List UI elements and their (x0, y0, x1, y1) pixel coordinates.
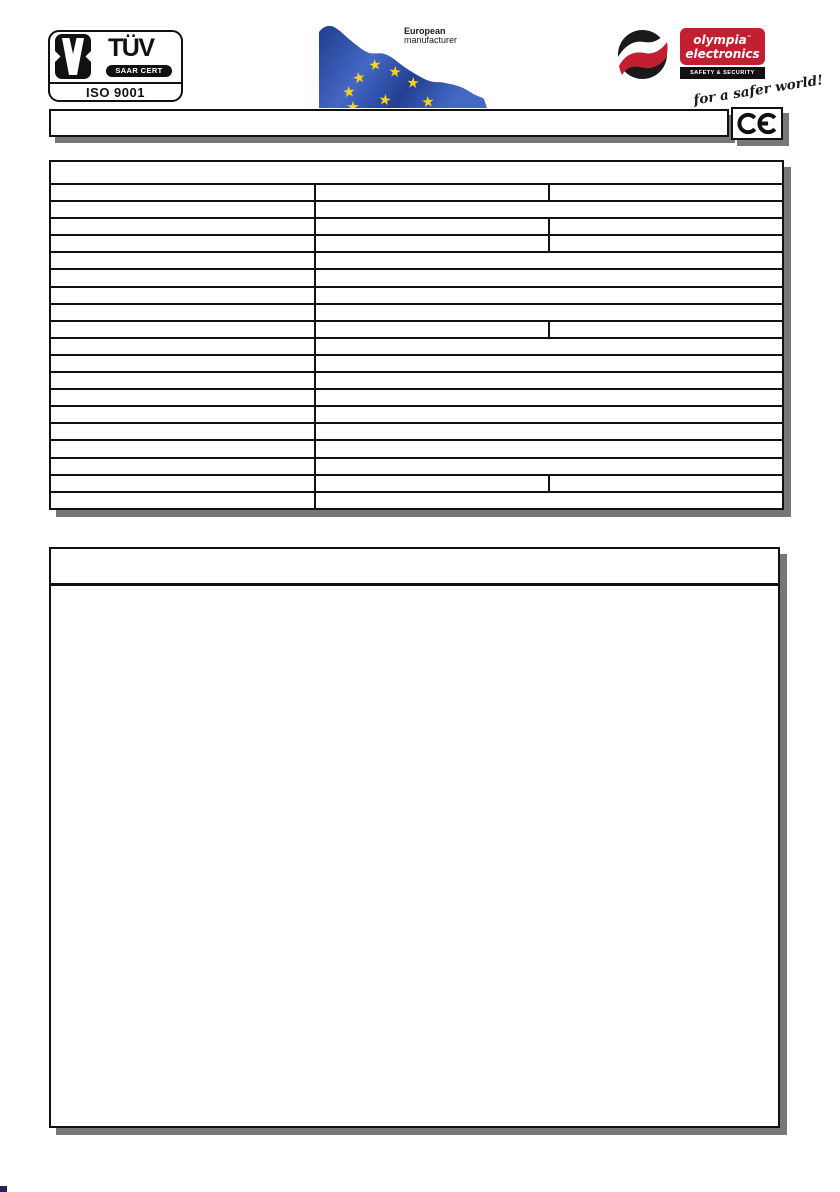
spec-table-row (51, 320, 782, 337)
safety-security-systems-bar: SAFETY & SECURITY SYSTEMS (680, 67, 765, 79)
spec-cell (316, 390, 782, 405)
olympia-wordmark-box: olympia™ electronics (680, 28, 765, 65)
spec-table-row (51, 337, 782, 354)
olympia-wordmark-line2: electronics (680, 48, 765, 62)
spec-table-row (51, 371, 782, 388)
spec-table-row (51, 200, 782, 217)
spec-cell (51, 305, 316, 320)
spec-cell (316, 202, 782, 217)
spec-cell (51, 493, 316, 508)
spec-cell (316, 288, 782, 303)
iso-9001-label: ISO 9001 (50, 82, 181, 100)
european-manufacturer-label: European manufacturer (404, 27, 457, 44)
spec-cell (316, 356, 782, 371)
spec-table-row (51, 234, 782, 251)
spec-cell (51, 339, 316, 354)
spec-cell (316, 185, 550, 200)
spec-table-row (51, 268, 782, 285)
ce-mark-icon (737, 111, 777, 136)
spec-cell (51, 219, 316, 234)
european-label-line2: manufacturer (404, 36, 457, 45)
spec-cell (51, 424, 316, 439)
spec-table-row (51, 217, 782, 234)
spec-cell (316, 424, 782, 439)
ce-mark-box (731, 107, 783, 140)
page-corner-mark (0, 1186, 7, 1192)
spec-table-row (51, 439, 782, 456)
spec-cell (316, 253, 782, 268)
spec-cell (51, 356, 316, 371)
spec-cell (550, 236, 782, 251)
spec-cell (316, 407, 782, 422)
spec-cell (316, 236, 550, 251)
spec-table (49, 160, 784, 510)
spec-cell (316, 493, 782, 508)
tuv-cert-logo: TÜV SAAR CERT ISO 9001 (48, 30, 183, 102)
spec-cell (51, 185, 316, 200)
product-title-bar (49, 109, 729, 137)
spec-table-row (51, 354, 782, 371)
tuv-saar-cert-badge: SAAR CERT (106, 65, 172, 77)
spec-cell (316, 305, 782, 320)
tuv-v-emblem-icon (55, 34, 91, 79)
spec-cell (51, 202, 316, 217)
spec-cell (51, 270, 316, 285)
spec-cell (51, 288, 316, 303)
spec-cell (51, 322, 316, 337)
spec-cell (316, 476, 550, 491)
tuv-wordmark: TÜV (108, 35, 154, 61)
spec-table-row (51, 405, 782, 422)
spec-cell (316, 339, 782, 354)
description-panel-body (51, 586, 778, 602)
spec-cell (316, 459, 782, 474)
spec-cell (316, 219, 550, 234)
spec-table-header (51, 162, 782, 183)
spec-cell (550, 185, 782, 200)
spec-cell (51, 373, 316, 388)
spec-table-row (51, 422, 782, 439)
spec-table-row (51, 457, 782, 474)
spec-cell (51, 441, 316, 456)
spec-table-row (51, 303, 782, 320)
spec-cell (51, 407, 316, 422)
document-page: TÜV SAAR CERT ISO 9001 European manufact… (0, 0, 840, 1192)
spec-cell (51, 253, 316, 268)
spec-cell (550, 322, 782, 337)
spec-table-row (51, 286, 782, 303)
olympia-wordmark-line1: olympia™ (680, 32, 765, 48)
description-panel (49, 547, 780, 1128)
spec-table-row (51, 474, 782, 491)
spec-table-rows (51, 183, 782, 508)
tuv-logo-top: TÜV SAAR CERT (50, 32, 181, 82)
spec-table-row (51, 251, 782, 268)
spec-cell (316, 322, 550, 337)
spec-table-row (51, 183, 782, 200)
spec-cell (316, 270, 782, 285)
spec-cell (550, 476, 782, 491)
spec-cell (316, 441, 782, 456)
spec-table-row (51, 388, 782, 405)
eu-flag-image (316, 24, 488, 108)
spec-cell (51, 476, 316, 491)
spec-cell (51, 236, 316, 251)
description-panel-header (51, 549, 778, 586)
spec-cell (51, 459, 316, 474)
olympia-swoosh-icon (617, 29, 668, 80)
trademark-symbol: ™ (747, 35, 752, 41)
spec-cell (51, 390, 316, 405)
spec-cell (550, 219, 782, 234)
spec-table-row (51, 491, 782, 508)
spec-cell (316, 373, 782, 388)
